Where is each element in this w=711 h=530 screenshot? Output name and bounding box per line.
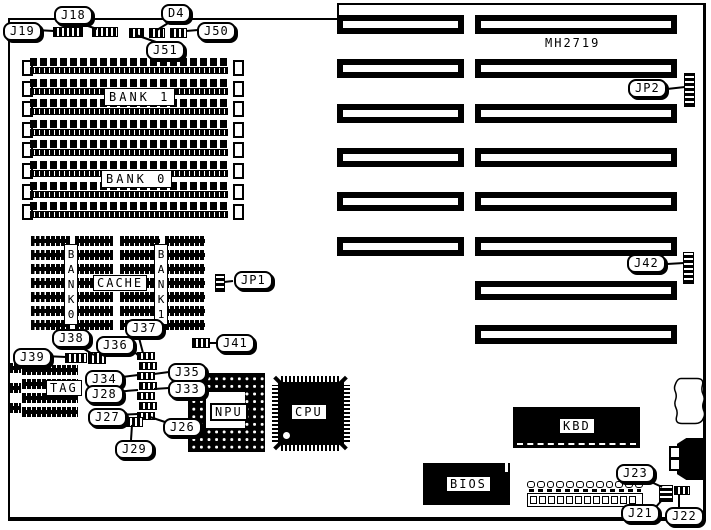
bank1-memory-label: BANK 1 — [104, 88, 175, 106]
label-j38: J38 — [52, 329, 91, 348]
leader-line — [224, 281, 233, 282]
motherboard-diagram: BANK 1 BANK 0 BANK0 BANK1 CACHE TAG NPU … — [0, 0, 711, 530]
label-j18: J18 — [54, 6, 93, 25]
label-j19: J19 — [3, 22, 42, 41]
cache-label: CACHE — [93, 275, 147, 291]
bank0-memory-label: BANK 0 — [101, 170, 172, 188]
label-jp2: JP2 — [628, 79, 667, 98]
leader-line — [150, 417, 165, 422]
label-j41: J41 — [216, 334, 255, 353]
leader-line — [667, 87, 685, 89]
leader-lines — [0, 0, 711, 530]
leader-line — [667, 263, 684, 264]
kbd-label: KBD — [559, 418, 595, 434]
label-j33: J33 — [168, 380, 207, 399]
label-j50: J50 — [197, 22, 236, 41]
tag-label: TAG — [46, 380, 82, 396]
label-j26: J26 — [163, 418, 202, 437]
npu-label: NPU — [210, 403, 248, 421]
bios-label: BIOS — [446, 476, 491, 492]
leader-line — [154, 372, 169, 374]
cache-bank1-label: BANK1 — [154, 244, 168, 325]
label-j23: J23 — [616, 464, 655, 483]
label-j28: J28 — [85, 385, 124, 404]
label-j51: J51 — [146, 41, 185, 60]
label-j21: J21 — [621, 504, 660, 523]
label-jp1: JP1 — [234, 271, 273, 290]
label-d4: D4 — [161, 4, 191, 23]
label-j42: J42 — [627, 254, 666, 273]
label-j27: J27 — [88, 408, 127, 427]
leader-line — [131, 425, 132, 440]
cache-bank0-label: BANK0 — [64, 244, 78, 325]
label-j36: J36 — [96, 336, 135, 355]
cpu-label: CPU — [291, 404, 327, 420]
label-j37: J37 — [125, 319, 164, 338]
label-j39: J39 — [13, 348, 52, 367]
label-j22: J22 — [665, 507, 704, 526]
label-j29: J29 — [115, 440, 154, 459]
leader-line — [154, 388, 169, 389]
